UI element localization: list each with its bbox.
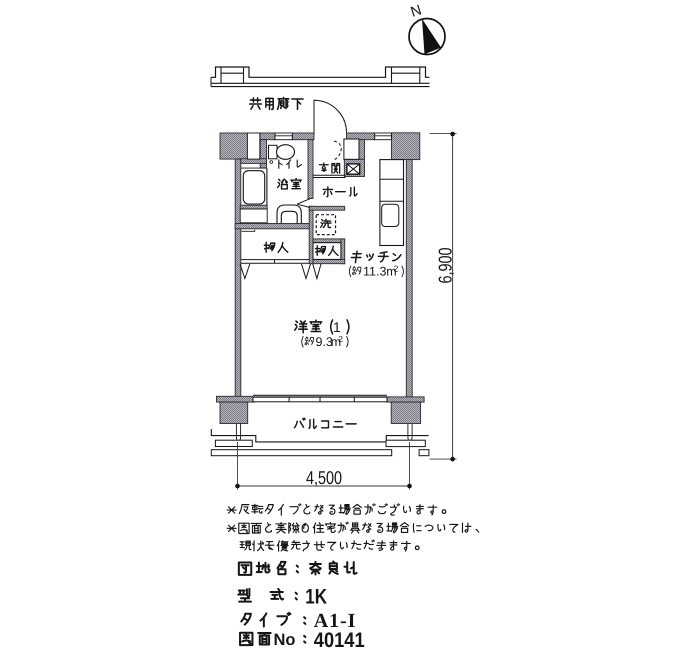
svg-text:11.3: 11.3 xyxy=(363,265,386,279)
svg-text:2: 2 xyxy=(394,264,399,274)
svg-text:6,900: 6,900 xyxy=(435,247,456,283)
svg-text:40141: 40141 xyxy=(314,629,365,650)
svg-text:No: No xyxy=(274,631,296,649)
svg-text:2: 2 xyxy=(338,334,343,344)
svg-text:4,500: 4,500 xyxy=(306,467,342,488)
svg-text:1: 1 xyxy=(333,319,341,335)
svg-text:1K: 1K xyxy=(305,585,327,608)
